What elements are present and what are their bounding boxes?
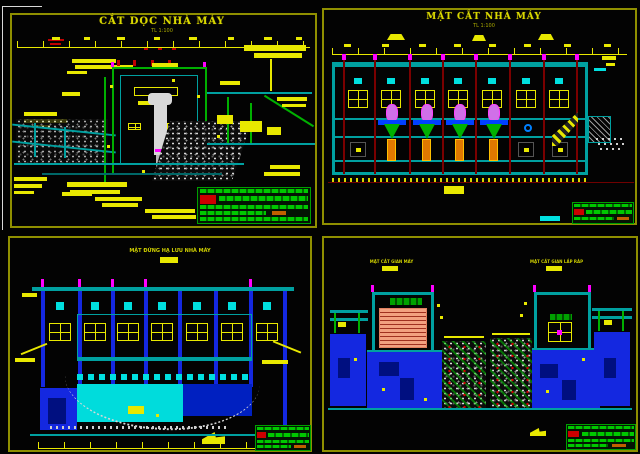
spot-level xyxy=(107,145,110,148)
base-line xyxy=(328,408,488,410)
callout-label xyxy=(277,97,307,101)
column xyxy=(475,54,477,174)
clerestory-window xyxy=(263,302,271,310)
clerestory-window xyxy=(354,78,362,84)
dimension-text xyxy=(117,37,125,40)
stamp-cell xyxy=(257,432,266,438)
panel-title: MẶT CẮT NHÀ MÁY xyxy=(394,12,574,22)
window xyxy=(516,90,536,108)
leader-line xyxy=(270,59,272,91)
clerestory-window xyxy=(124,302,132,310)
tower-wall xyxy=(588,292,591,348)
column-tip xyxy=(373,54,377,60)
red-tick xyxy=(144,48,148,50)
tailrace-floor xyxy=(207,143,315,145)
pump-circle xyxy=(524,124,532,132)
abutment-void xyxy=(604,358,616,378)
column xyxy=(442,54,444,174)
clerestory-window xyxy=(56,302,64,310)
dimension-text xyxy=(524,44,531,47)
ground-marks xyxy=(598,143,624,145)
tower-wall xyxy=(431,292,434,350)
column-tip xyxy=(441,54,445,60)
roof-vent xyxy=(538,34,554,40)
spot-level xyxy=(217,135,220,138)
roof-slab xyxy=(332,62,588,67)
column-tip xyxy=(144,279,147,287)
column-tip xyxy=(474,54,478,60)
roof-tick xyxy=(117,60,120,66)
scale-box xyxy=(382,266,398,271)
clerestory-window xyxy=(522,78,530,84)
column-tip xyxy=(588,285,591,292)
transformer-block xyxy=(379,308,427,348)
callout-label xyxy=(102,203,138,207)
rock-bolt-dots xyxy=(442,341,486,408)
dimension-text xyxy=(419,44,426,47)
roof-vent xyxy=(472,35,486,41)
dimension-line-bottom xyxy=(38,442,290,449)
pier xyxy=(489,139,498,161)
panel-elevation: MẶT ĐỨNG HẠ LƯU NHÀ MÁY xyxy=(8,236,312,452)
window xyxy=(348,90,368,108)
gallery-void xyxy=(379,362,399,376)
canopy-mark xyxy=(338,322,346,327)
red-tick xyxy=(172,48,176,50)
callout-label xyxy=(264,172,300,176)
column-tip xyxy=(78,279,81,287)
callout-label xyxy=(152,63,178,67)
door-mark xyxy=(524,148,529,152)
spot-level xyxy=(382,388,385,391)
canopy-mark xyxy=(604,320,612,325)
dimension-text xyxy=(454,44,461,47)
spot-level xyxy=(440,316,443,319)
spot-level xyxy=(172,79,175,82)
clerestory-window xyxy=(387,78,395,84)
stamp-cell xyxy=(200,195,216,204)
spot-level xyxy=(354,358,357,361)
callout-label xyxy=(254,53,302,58)
door-mark xyxy=(356,148,361,152)
column-tip xyxy=(203,62,206,67)
tailrace-deck xyxy=(207,92,312,94)
upstream-wall xyxy=(104,77,106,185)
window xyxy=(549,90,569,108)
callout-label xyxy=(14,191,34,194)
spot-level xyxy=(437,304,440,307)
cut-line xyxy=(328,182,634,183)
clerestory-window xyxy=(91,302,99,310)
callout-label xyxy=(62,92,80,96)
callout-label xyxy=(15,358,35,362)
spot-level xyxy=(424,398,427,401)
callout-label xyxy=(262,360,288,364)
pier xyxy=(422,139,431,161)
column-tip xyxy=(575,54,579,60)
tower-wall xyxy=(534,292,537,348)
section-title-left: MẶT CẮT GIAN MÁY xyxy=(354,259,429,264)
scale-box xyxy=(160,257,178,263)
clerestory-window xyxy=(158,302,166,310)
ground-dots xyxy=(50,426,230,429)
panel-subtitle: TL 1:100 xyxy=(122,28,202,34)
spot-label xyxy=(128,406,144,414)
pier xyxy=(387,139,396,161)
intake-pier xyxy=(64,127,66,158)
dimension-text xyxy=(382,44,389,47)
callout-label xyxy=(22,293,37,297)
note-label xyxy=(540,216,560,221)
annex-mark xyxy=(594,68,606,71)
rock-hatch xyxy=(490,338,532,408)
column-tip xyxy=(111,62,114,67)
panel-title: MẶT ĐỨNG HẠ LƯU NHÀ MÁY xyxy=(105,248,235,254)
abutment-inner xyxy=(48,398,66,424)
callout-label xyxy=(152,215,196,219)
dimension-text xyxy=(154,37,160,40)
clerestory-window xyxy=(454,78,462,84)
equipment-mark xyxy=(557,330,562,335)
callout-label xyxy=(602,56,616,60)
gallery-void xyxy=(562,380,576,400)
spot-level xyxy=(110,85,113,88)
scale-box xyxy=(546,266,562,271)
title-block xyxy=(566,424,636,450)
generator-unit xyxy=(454,104,466,121)
gate-block xyxy=(267,127,281,135)
dimension-text xyxy=(264,37,272,40)
abutment-void xyxy=(338,358,350,378)
dimension-text xyxy=(344,44,351,47)
dimension-text xyxy=(189,37,197,40)
canopy-post xyxy=(622,311,624,331)
dimension-ticks xyxy=(492,333,530,335)
stamp-cell xyxy=(574,209,584,215)
callout-label xyxy=(270,165,300,169)
window xyxy=(49,323,71,341)
column xyxy=(343,54,345,174)
tower-wall xyxy=(372,292,375,350)
roof-line xyxy=(32,287,294,291)
column-tip xyxy=(542,54,546,60)
column-tip xyxy=(111,279,114,287)
clerestory-window xyxy=(228,302,236,310)
column-tip xyxy=(533,285,536,292)
sheet-edge-vertical xyxy=(2,6,3,230)
gate-block xyxy=(240,121,262,132)
spot-level xyxy=(546,390,549,393)
column-tip xyxy=(408,54,412,60)
dimension-text xyxy=(84,37,90,40)
door-mark xyxy=(558,148,563,152)
panel-transverse-sections: MẶT CẮT GIAN MÁY MẶT CẮT GIAN L xyxy=(322,236,638,452)
foundation-line xyxy=(14,163,244,165)
dimension-text xyxy=(564,44,571,47)
canopy-post xyxy=(598,311,600,331)
base-line xyxy=(488,408,632,410)
column-tip xyxy=(249,279,252,287)
callout-label xyxy=(14,184,42,188)
intake-pier xyxy=(34,123,36,157)
callout-label xyxy=(145,209,195,213)
red-tick xyxy=(158,48,162,50)
gallery-void xyxy=(540,364,558,378)
callout-label xyxy=(14,177,47,181)
title-block xyxy=(197,187,311,224)
column xyxy=(509,54,511,174)
dimension-text xyxy=(228,37,234,40)
scale-box xyxy=(444,186,464,194)
base-slab xyxy=(332,172,588,175)
dimension-text xyxy=(604,44,611,47)
canopy-post xyxy=(358,313,360,333)
equipment-label xyxy=(390,298,422,305)
spot-level xyxy=(524,302,527,305)
column xyxy=(409,54,411,174)
callout-label xyxy=(67,182,127,187)
dimension-ticks xyxy=(444,336,484,338)
rock-hatch xyxy=(442,341,486,408)
clerestory-window xyxy=(421,78,429,84)
callout-label xyxy=(24,112,57,116)
roof-vent xyxy=(387,34,405,40)
rock-bolt-dots xyxy=(490,338,532,408)
column-tip xyxy=(41,279,44,287)
clerestory-window xyxy=(488,78,496,84)
generator-unit xyxy=(386,104,398,121)
column-tip xyxy=(371,285,374,292)
callout-label xyxy=(67,71,87,74)
base-line xyxy=(42,173,222,175)
turbine-generator xyxy=(148,93,172,105)
column xyxy=(543,54,545,174)
equipment-label xyxy=(550,314,572,320)
callout-label xyxy=(72,59,116,63)
stamp-cell xyxy=(568,431,579,437)
spot-level xyxy=(582,358,585,361)
ground-marks xyxy=(596,138,626,140)
column xyxy=(374,54,376,174)
tower-top xyxy=(372,292,434,295)
dimension-text xyxy=(52,37,60,40)
column-tip xyxy=(431,285,434,292)
sheet-edge-horizontal xyxy=(2,6,42,7)
dimension-text xyxy=(489,44,496,47)
column-tip xyxy=(342,54,346,60)
clerestory-window xyxy=(555,78,563,84)
column-tip xyxy=(508,54,512,60)
equipment-box xyxy=(128,123,141,130)
gallery-void xyxy=(400,378,414,400)
callout-label xyxy=(606,63,615,66)
panel-cross-section: MẶT CẮT NHÀ MÁY TL 1:100 xyxy=(322,8,637,225)
drain-line xyxy=(273,340,302,353)
generator-unit xyxy=(488,104,500,121)
callout-label xyxy=(244,45,306,51)
window xyxy=(221,323,243,341)
window xyxy=(256,323,278,341)
spot-level xyxy=(142,170,145,173)
panel-title: CẮT DỌC NHÀ MÁY xyxy=(72,16,252,27)
cad-sheet: CẮT DỌC NHÀ MÁY TL 1:100 xyxy=(0,0,640,454)
section-title-right: MẶT CẮT GIAN LẮP RÁP xyxy=(514,259,599,264)
tower-top xyxy=(534,292,591,295)
north-arrow xyxy=(530,428,546,436)
callout-label xyxy=(282,104,306,107)
roof-tick xyxy=(133,60,136,66)
title-block xyxy=(572,202,634,224)
callout-label xyxy=(95,197,142,201)
title-block xyxy=(255,425,311,451)
clerestory-window xyxy=(193,302,201,310)
callout-label xyxy=(70,190,120,194)
generator-unit xyxy=(421,104,433,121)
facade-column xyxy=(41,291,45,387)
canopy-post xyxy=(334,313,336,333)
dimension-text xyxy=(296,37,302,40)
spot-level xyxy=(197,95,200,98)
spot-level xyxy=(520,314,523,317)
panel-subtitle: TL 1:100 xyxy=(444,23,524,29)
gate-block xyxy=(217,115,233,124)
callout-label xyxy=(220,81,240,85)
ground-marks xyxy=(600,148,622,150)
pier xyxy=(455,139,464,161)
spot-level xyxy=(156,414,159,417)
panel-longitudinal-section: CẮT DỌC NHÀ MÁY TL 1:100 xyxy=(10,13,317,228)
